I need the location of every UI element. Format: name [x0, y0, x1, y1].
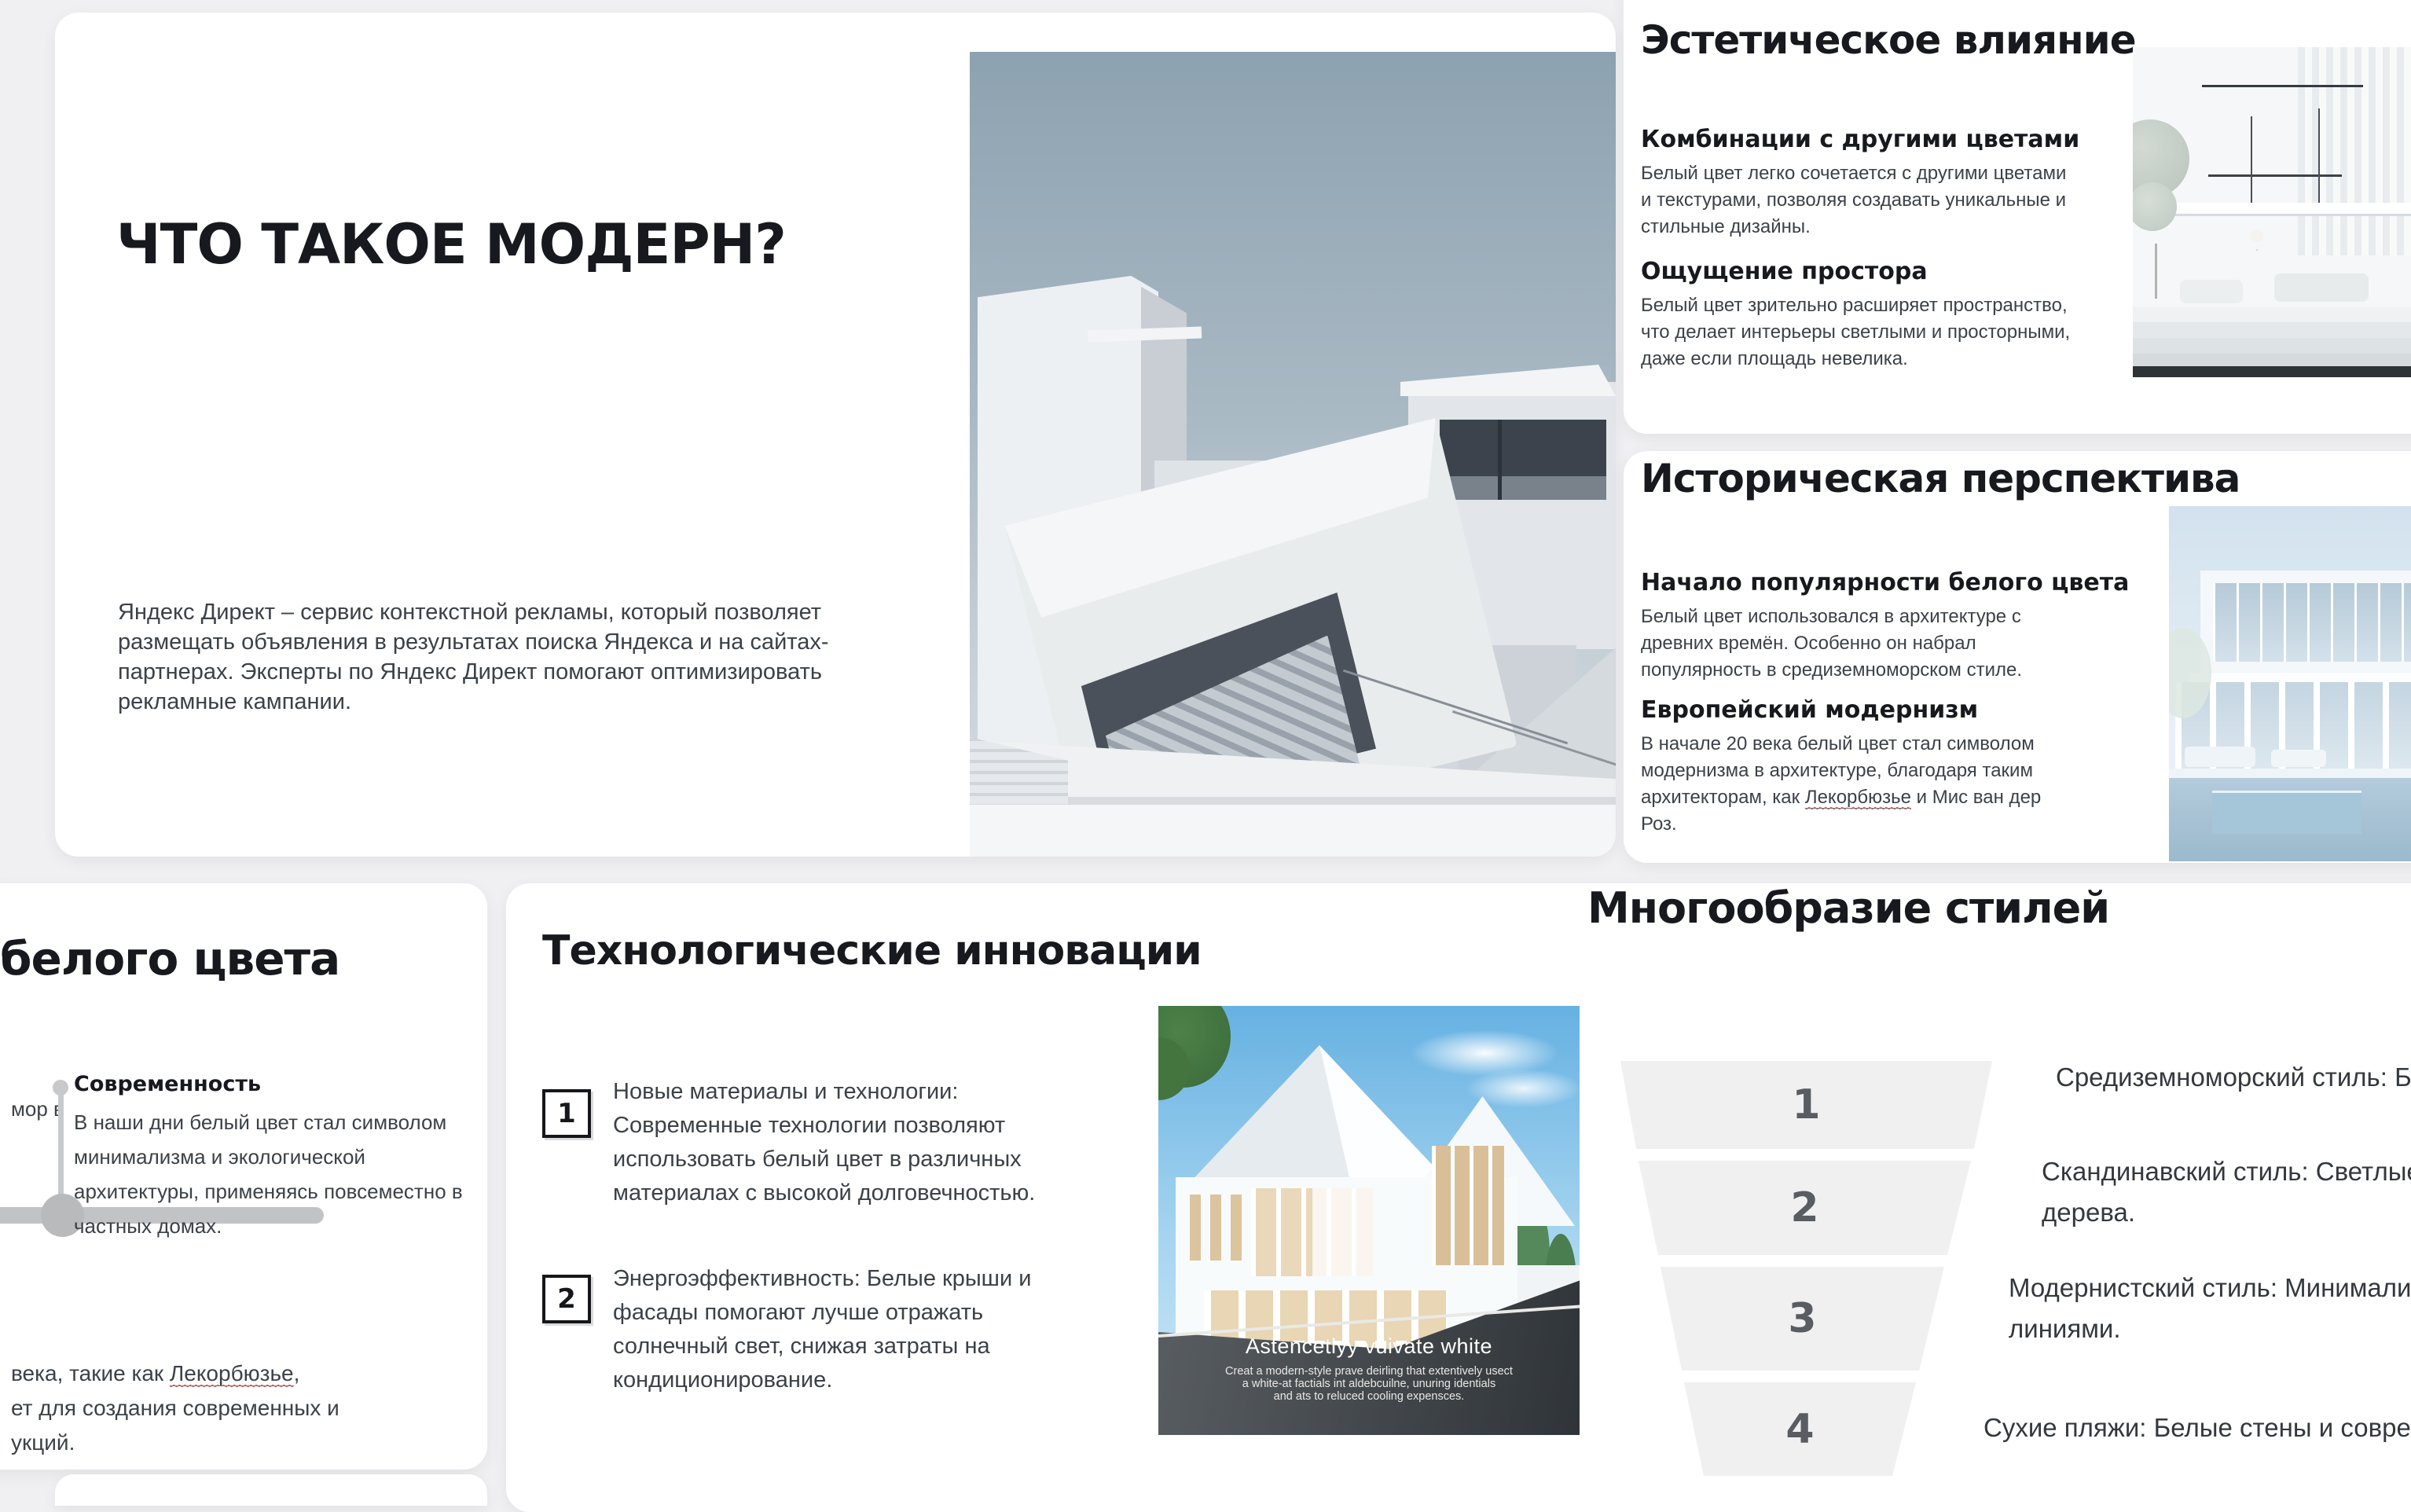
- section-body: Белый цвет использовался в архитектуре с…: [1641, 604, 2081, 684]
- louver-wall: [2298, 47, 2411, 255]
- caption-line-1: Creat a modern-style prave deirling that…: [1158, 1365, 1580, 1378]
- funnel-label-4: Сухие пляжи: Белые стены и современная п…: [1983, 1413, 2411, 1443]
- section-heading: Ощущение простора: [1641, 258, 1928, 285]
- funnel-label-3-line1: Модернистский стиль: Минималистичные бел…: [2009, 1273, 2411, 1303]
- facade-slots: [1190, 1195, 1201, 1261]
- caption-title: Astencetlyy vuivate white: [1158, 1334, 1580, 1359]
- tech-item-text-1: Новые материалы и технологии: Современны…: [613, 1075, 1100, 1210]
- section-body: В начале 20 века белый цвет стал символо…: [1641, 731, 2081, 838]
- terrace-furniture-1: [2185, 747, 2255, 767]
- bottom-fragment-line2: ет для создания современных и: [11, 1396, 339, 1421]
- section-body: Белый цвет легко сочетается с другими цв…: [1641, 160, 2081, 240]
- white-house-image: Astencetlyy vuivate white Creat a modern…: [1158, 1006, 1580, 1435]
- steps-band-1: [2133, 306, 2411, 322]
- slide-title: Эстетическое влияние: [1641, 17, 2136, 63]
- caption-line-3: and ats to reluced cooling expensces.: [1158, 1390, 1580, 1403]
- timeline-top-dot: [53, 1080, 68, 1095]
- tech-item-text-2: Энергоэффективность: Белые крыши и фасад…: [613, 1262, 1100, 1397]
- left-text-fragment: мор в: [11, 1097, 64, 1121]
- steps-band-4: [2133, 354, 2411, 366]
- funnel-number-1: 1: [1792, 1081, 1820, 1128]
- funnel-label-3-line2: линиями.: [2009, 1314, 2121, 1344]
- next-slide-sliver[interactable]: [55, 1474, 487, 1506]
- upper-curtain: [1312, 1188, 1373, 1276]
- tech-item-number-1-label: 1: [557, 1098, 576, 1129]
- fragment-pre: века, такие как: [11, 1361, 170, 1385]
- funnel-row-1[interactable]: 1: [1620, 1061, 1992, 1149]
- terrace-furniture-2: [2271, 750, 2326, 767]
- slide-body-paragraph: Яндекс Директ – сервис контекстной рекла…: [118, 597, 864, 717]
- deck-band: [2169, 769, 2411, 778]
- section-heading: Европейский модернизм: [1641, 696, 1978, 724]
- ground-strip: [970, 800, 1616, 857]
- interior-image: [2133, 47, 2411, 377]
- fragment-post: ,: [294, 1361, 300, 1385]
- mid-slab: [2189, 673, 2411, 682]
- villa-image: [2169, 506, 2411, 861]
- funnel-label-2-line1: Скандинавский стиль: Светлые интерьеры и…: [2042, 1157, 2411, 1187]
- tech-item-number-2: 2: [542, 1275, 591, 1323]
- sofa-blob-2: [2180, 280, 2243, 303]
- architect-link-text[interactable]: Лекорбюзье: [170, 1361, 294, 1385]
- funnel-row-3[interactable]: 3: [1661, 1267, 1944, 1371]
- slide-title: ЧТО ТАКОЕ МОДЕРН?: [116, 212, 786, 277]
- window-divider: [1498, 420, 1502, 500]
- slide-card-timeline[interactable]: белого цвета мор в Современность В наши …: [0, 883, 487, 1470]
- floor-lamp: [2251, 229, 2263, 242]
- funnel-row-4[interactable]: 4: [1684, 1382, 1916, 1476]
- steps-band-2: [2133, 322, 2411, 338]
- section-heading: Комбинации с другими цветами: [1641, 126, 2079, 153]
- milestone-heading: Современность: [74, 1072, 261, 1096]
- funnel-number-2: 2: [1790, 1184, 1818, 1231]
- architect-link-text[interactable]: Лекорбюзье: [1805, 787, 1911, 808]
- milestone-body: В наши дни белый цвет стал символом мини…: [74, 1105, 467, 1243]
- ceiling-track: [2202, 85, 2363, 87]
- section-body: Белый цвет зрительно расширяет пространс…: [1641, 292, 2081, 372]
- caption-line-2: a white-at factials int aldebcuilne, unu…: [1158, 1378, 1580, 1390]
- steps-band-3: [2133, 338, 2411, 354]
- tree-trunk: [2155, 244, 2157, 299]
- tech-item-number-1: 1: [542, 1089, 591, 1138]
- slides-canvas: { "colors": { "page_bg": "#f0f0f2", "car…: [0, 0, 2411, 1484]
- funnel-label-2-line2: дерева.: [2042, 1198, 2135, 1228]
- bottom-dark-strip: [2133, 366, 2411, 377]
- architect-link[interactable]: Лекорбюзье: [1805, 787, 1911, 809]
- section-heading: Начало популярности белого цвета: [1641, 569, 2129, 596]
- funnel-label-1: Средиземноморский стиль: Белые стены и: [2056, 1062, 2411, 1092]
- hero-architecture-image: [970, 52, 1616, 857]
- pool: [2212, 791, 2361, 834]
- styles-title: Многообразие стилей: [1587, 883, 2109, 933]
- balcony-rail: [2208, 174, 2342, 177]
- image-caption: Astencetlyy vuivate white Creat a modern…: [1158, 1334, 1580, 1403]
- funnel-number-4: 4: [1785, 1406, 1814, 1453]
- tech-item-number-2-label: 2: [557, 1283, 576, 1315]
- gable-window-mullions: [1432, 1146, 1504, 1265]
- balcony-post-1: [2251, 116, 2252, 203]
- bottom-fragment-line3: укций.: [11, 1430, 75, 1455]
- slide-title-fragment: белого цвета: [0, 932, 339, 985]
- slide-title: Историческая перспектива: [1641, 456, 2240, 501]
- window-sill: [1440, 476, 1606, 500]
- funnel-row-2[interactable]: 2: [1639, 1161, 1971, 1255]
- architect-link[interactable]: Лекорбюзье: [170, 1361, 294, 1386]
- sofa-blob-1: [2274, 273, 2369, 302]
- bottom-fragment-line1: века, такие как Лекорбюзье,: [11, 1361, 299, 1386]
- balcony-post-2: [2318, 108, 2320, 203]
- upper-mullions: [2213, 583, 2411, 662]
- funnel-number-3: 3: [1788, 1295, 1816, 1342]
- tech-title: Технологические инновации: [542, 927, 1202, 974]
